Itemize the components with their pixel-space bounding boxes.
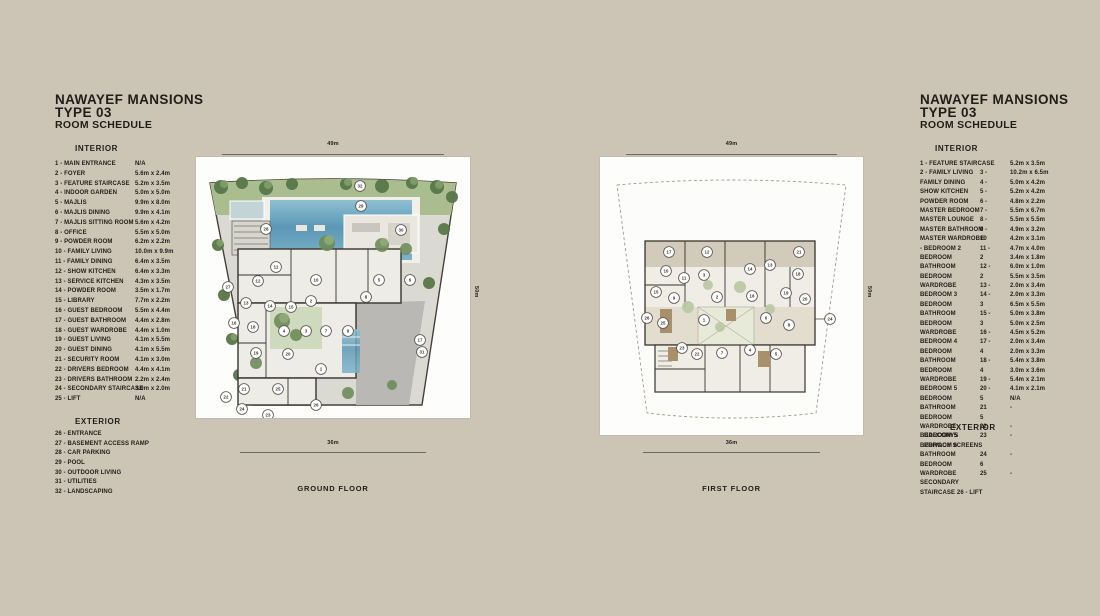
exterior-item-nm: 29 - POOL xyxy=(55,460,85,466)
interior-row: SECONDARY xyxy=(920,480,1098,489)
first-floor-label: FIRST FLOOR xyxy=(600,484,863,493)
interior-item-sz: 4.1m x 5.5m xyxy=(135,347,170,353)
interior-row-nb: 5 - xyxy=(980,189,987,195)
interior-item-nm: 11 - FAMILY DINING xyxy=(55,259,112,265)
room-marker-number: 11 xyxy=(682,276,687,281)
exterior-item: 30 - OUTDOOR LIVING xyxy=(55,470,215,480)
ground-dim-bottom-line xyxy=(240,452,426,453)
interior-item-nm: 6 - MAJLIS DINING xyxy=(55,210,110,216)
interior-row: BEDROOM5 xyxy=(920,415,1098,424)
page: NAWAYEF MANSIONS TYPE 03 ROOM SCHEDULE I… xyxy=(0,0,1100,616)
first-dim-side: 50m xyxy=(866,286,872,298)
interior-row-sz: 5.2m x 4.2m xyxy=(1010,189,1045,195)
interior-item-nm: 19 - GUEST LIVING xyxy=(55,337,111,343)
interior-row-nm: SHOW KITCHEN xyxy=(920,189,968,195)
interior-row-sz: 5.5m x 5.5m xyxy=(1010,217,1045,223)
interior-row-sz: N/A xyxy=(1010,396,1021,402)
interior-row-nm: BEDROOM xyxy=(920,396,952,402)
interior-item-nm: 9 - POWDER ROOM xyxy=(55,239,113,245)
interior-row: - BEDROOM 211 -4.7m x 4.0m xyxy=(920,246,1098,255)
interior-row-nm: SECONDARY xyxy=(920,480,959,486)
interior-row: BEDROOM43.0m x 3.6m xyxy=(920,368,1098,377)
interior-item: 8 - OFFICE5.5m x 5.0m xyxy=(55,230,215,240)
exterior-item: 26 - ENTRANCE xyxy=(55,431,215,441)
interior-item: 15 - LIBRARY7.7m x 2.2m xyxy=(55,298,215,308)
interior-item-sz: 4.1m x 5.5m xyxy=(135,337,170,343)
interior-item-nm: 22 - DRIVERS BEDROOM xyxy=(55,367,129,373)
interior-item: 11 - FAMILY DINING6.4m x 3.5m xyxy=(55,259,215,269)
room-marker-number: 28 xyxy=(264,227,269,232)
interior-item-sz: 3.5m x 1.7m xyxy=(135,288,170,294)
interior-item-nm: 8 - OFFICE xyxy=(55,230,87,236)
first-dim-top-line xyxy=(626,154,837,155)
room-marker-number: 10 xyxy=(664,269,669,274)
room-marker-number: 21 xyxy=(242,387,247,392)
interior-item-sz: 5.2m x 3.5m xyxy=(135,181,170,187)
interior-row-nm: BEDROOM xyxy=(920,415,952,421)
interior-row-nm: BEDROOM xyxy=(920,368,952,374)
interior-row: BATHROOM21- xyxy=(920,405,1098,414)
interior-item-sz: 2.2m x 2.4m xyxy=(135,377,170,383)
exterior-item-nm: 26 - ENTRANCE xyxy=(55,431,102,437)
room-marker-number: 23 xyxy=(266,413,271,418)
interior-row: MASTER LOUNGE8 -5.5m x 5.5m xyxy=(920,217,1098,226)
interior-row-sz: - xyxy=(1010,405,1012,411)
exterior-item: 27 - BASEMENT ACCESS RAMP xyxy=(55,441,215,451)
room-marker-number: 10 xyxy=(314,278,319,283)
interior-row-sz: 5.2m x 3.5m xyxy=(1010,161,1045,167)
interior-row: POWDER ROOM6 -4.8m x 2.2m xyxy=(920,199,1098,208)
interior-row: STAIRCASE 26 - LIFT xyxy=(920,490,1098,499)
indoor-garden xyxy=(270,307,322,349)
interior-row-nm: BEDROOM xyxy=(920,349,952,355)
interior-item-sz: 5.5m x 4.4m xyxy=(135,308,170,314)
interior-row-sz: 2.0m x 3.4m xyxy=(1010,339,1045,345)
room-marker-number: 20 xyxy=(286,352,291,357)
room-marker-number: 13 xyxy=(768,263,773,268)
interior-row-sz: - xyxy=(1010,452,1012,458)
interior-row-sz: 4.2m x 3.1m xyxy=(1010,236,1045,242)
interior-item: 13 - SERVICE KITCHEN4.3m x 3.5m xyxy=(55,279,215,289)
exterior-item-nm: 32 - LANDSCAPING xyxy=(55,489,113,495)
interior-row-nm: BEDROOM xyxy=(920,321,952,327)
interior-item: 17 - GUEST BATHROOM4.4m x 2.8m xyxy=(55,318,215,328)
room-marker-number: 22 xyxy=(695,352,700,357)
interior-item-nm: 14 - POWDER ROOM xyxy=(55,288,116,294)
interior-row-nm: BEDROOM xyxy=(920,274,952,280)
left-interior-heading: INTERIOR xyxy=(75,144,118,153)
interior-item-sz: 5.6m x 2.4m xyxy=(135,171,170,177)
interior-item-sz: 6.4m x 3.3m xyxy=(135,269,170,275)
interior-item: 9 - POWDER ROOM6.2m x 2.2m xyxy=(55,239,215,249)
first-dim-bottom: 36m xyxy=(600,440,863,446)
right-exterior-heading: EXTERIOR xyxy=(950,423,996,432)
right-title-line2: TYPE 03 xyxy=(920,106,1068,119)
interior-row-nm: BEDROOM xyxy=(920,462,952,468)
left-title-line3: ROOM SCHEDULE xyxy=(55,119,203,131)
interior-item-nm: 17 - GUEST BATHROOM xyxy=(55,318,126,324)
interior-row-nb: 3 - xyxy=(980,170,987,176)
interior-item-nm: 3 - FEATURE STAIRCASE xyxy=(55,181,130,187)
interior-item: 19 - GUEST LIVING4.1m x 5.5m xyxy=(55,337,215,347)
interior-row-nb: 4 xyxy=(980,368,983,374)
interior-row-nb: 19 - xyxy=(980,377,990,383)
interior-row: BATHROOM12 -6.0m x 1.0m xyxy=(920,264,1098,273)
interior-item-sz: 3.0m x 2.0m xyxy=(135,386,170,392)
right-title: NAWAYEF MANSIONS TYPE 03 ROOM SCHEDULE xyxy=(920,93,1068,131)
interior-item-sz: N/A xyxy=(135,161,146,167)
interior-item-nm: 2 - FOYER xyxy=(55,171,85,177)
interior-row-nm: BEDROOM 3 xyxy=(920,292,957,298)
interior-row: BEDROOM6 xyxy=(920,462,1098,471)
interior-item-sz: 4.3m x 3.5m xyxy=(135,279,170,285)
interior-row-nb: 4 - xyxy=(980,180,987,186)
interior-item-sz: 5.0m x 5.0m xyxy=(135,190,170,196)
interior-row-nm: WARDROBE xyxy=(920,377,956,383)
interior-row-nm: WARDROBE xyxy=(920,330,956,336)
first-dim-bottom-line xyxy=(643,452,820,453)
interior-item-nm: 16 - GUEST BEDROOM xyxy=(55,308,122,314)
interior-row-nb: 20 - xyxy=(980,386,990,392)
interior-row-sz: 6.0m x 1.0m xyxy=(1010,264,1045,270)
room-marker-number: 19 xyxy=(784,291,789,296)
interior-item: 22 - DRIVERS BEDROOM4.4m x 4.1m xyxy=(55,367,215,377)
interior-row-nm: - BEDROOM 2 xyxy=(920,246,961,252)
interior-item-nm: 7 - MAJLIS SITTING ROOM xyxy=(55,220,134,226)
interior-item-sz: 5.6m x 4.2m xyxy=(135,220,170,226)
interior-row: FAMILY DINING4 -5.0m x 4.2m xyxy=(920,180,1098,189)
interior-row-nb: 24 xyxy=(980,452,987,458)
interior-row: 2 - FAMILY LIVING3 -10.2m x 6.5m xyxy=(920,170,1098,179)
room-marker-number: 20 xyxy=(803,297,808,302)
interior-row: WARDROBE25- xyxy=(920,471,1098,480)
interior-row-sz: 5.4m x 3.8m xyxy=(1010,358,1045,364)
building xyxy=(645,241,825,392)
interior-item: 24 - SECONDARY STAIRCASE3.0m x 2.0m xyxy=(55,386,215,396)
interior-row-nb: 13 - xyxy=(980,283,990,289)
right-exterior-item-2: PRIVACY SCREENS xyxy=(924,443,982,449)
interior-row-sz: 3.4m x 1.8m xyxy=(1010,255,1045,261)
interior-row-sz: 4.7m x 4.0m xyxy=(1010,246,1045,252)
interior-row-nb: 2 xyxy=(980,274,983,280)
interior-row-nm: MASTER BATHROOM xyxy=(920,227,983,233)
interior-item-sz: 9.9m x 4.1m xyxy=(135,210,170,216)
room-marker-number: 26 xyxy=(645,316,650,321)
interior-row-nb: 10 xyxy=(980,236,987,242)
interior-row: WARDROBE16 -4.5m x 5.2m xyxy=(920,330,1098,339)
interior-item: 21 - SECURITY ROOM4.1m x 3.0m xyxy=(55,357,215,367)
interior-row: WARDROBE13 -2.0m x 3.4m xyxy=(920,283,1098,292)
interior-item: 14 - POWDER ROOM3.5m x 1.7m xyxy=(55,288,215,298)
left-interior-list: 1 - MAIN ENTRANCEN/A2 - FOYER5.6m x 2.4m… xyxy=(55,161,215,406)
interior-row-sz: 2.0m x 3.3m xyxy=(1010,292,1045,298)
interior-item: 23 - DRIVERS BATHROOM2.2m x 2.4m xyxy=(55,377,215,387)
interior-item: 16 - GUEST BEDROOM5.5m x 4.4m xyxy=(55,308,215,318)
interior-row-nb: 4 xyxy=(980,349,983,355)
interior-item: 4 - INDOOR GARDEN5.0m x 5.0m xyxy=(55,190,215,200)
room-marker-number: 18 xyxy=(796,272,801,277)
interior-row: BATHROOM15 -5.0m x 3.8m xyxy=(920,311,1098,320)
interior-row: 1 - FEATURE STAIRCASE5.2m x 3.5m xyxy=(920,161,1098,170)
interior-row-nb: 14 - xyxy=(980,292,990,298)
interior-item-nm: 13 - SERVICE KITCHEN xyxy=(55,279,124,285)
interior-row-sz: 5.0m x 3.8m xyxy=(1010,311,1045,317)
left-title: NAWAYEF MANSIONS TYPE 03 ROOM SCHEDULE xyxy=(55,93,203,131)
interior-item-sz: 9.9m x 8.0m xyxy=(135,200,170,206)
interior-row: BEDROOM36.5m x 5.5m xyxy=(920,302,1098,311)
interior-row: MASTER WARDROBE104.2m x 3.1m xyxy=(920,236,1098,245)
interior-item: 7 - MAJLIS SITTING ROOM5.6m x 4.2m xyxy=(55,220,215,230)
interior-row-sz: 3.0m x 3.6m xyxy=(1010,368,1045,374)
interior-item: 1 - MAIN ENTRANCEN/A xyxy=(55,161,215,171)
interior-row-sz: 6.5m x 5.5m xyxy=(1010,302,1045,308)
interior-item-nm: 18 - GUEST WARDROBE xyxy=(55,328,127,334)
interior-item-sz: 10.0m x 9.9m xyxy=(135,249,174,255)
interior-row: WARDROBE22- xyxy=(920,424,1098,433)
room-marker-number: 19 xyxy=(254,351,259,356)
interior-row-nm: POWDER ROOM xyxy=(920,199,968,205)
interior-row: WARDROBE19 -5.4m x 2.1m xyxy=(920,377,1098,386)
interior-item-sz: 4.4m x 1.0m xyxy=(135,328,170,334)
interior-row-sz: - xyxy=(1010,424,1012,430)
interior-item-sz: N/A xyxy=(135,396,146,402)
room-marker-number: 26 xyxy=(314,403,319,408)
interior-row-nb: 5 xyxy=(980,396,983,402)
left-title-line2: TYPE 03 xyxy=(55,106,203,119)
room-marker-number: 29 xyxy=(359,204,364,209)
interior-item: 25 - LIFTN/A xyxy=(55,396,215,406)
interior-row: MASTER BEDROOM7 -5.5m x 6.7m xyxy=(920,208,1098,217)
interior-row-sz: - xyxy=(1010,471,1012,477)
interior-row-nm: BATHROOM xyxy=(920,264,956,270)
interior-item: 10 - FAMILY LIVING10.0m x 9.9m xyxy=(55,249,215,259)
interior-row-nb: 7 - xyxy=(980,208,987,214)
room-marker-number: 16 xyxy=(750,294,755,299)
interior-row-nm: BEDROOM xyxy=(920,302,952,308)
interior-item-nm: 23 - DRIVERS BATHROOM xyxy=(55,377,132,383)
room-marker-number: 12 xyxy=(705,250,710,255)
room-marker-number: 30 xyxy=(399,228,404,233)
room-marker-number: 18 xyxy=(251,325,256,330)
interior-row-nb: 16 - xyxy=(980,330,990,336)
ground-dim-bottom: 36m xyxy=(196,440,470,446)
interior-row-nb: 25 xyxy=(980,471,987,477)
interior-row-nm: BEDROOM 5 xyxy=(920,386,957,392)
interior-item-nm: 24 - SECONDARY STAIRCASE xyxy=(55,386,143,392)
interior-row-nm: 2 - FAMILY LIVING xyxy=(920,170,973,176)
interior-row-nb: 5 xyxy=(980,415,983,421)
room-marker-number: 25 xyxy=(276,387,281,392)
room-marker-number: 23 xyxy=(680,346,685,351)
room-marker-number: 31 xyxy=(420,350,425,355)
interior-item: 5 - MAJLIS9.9m x 8.0m xyxy=(55,200,215,210)
interior-item-nm: 15 - LIBRARY xyxy=(55,298,95,304)
interior-item-nm: 20 - GUEST DINING xyxy=(55,347,112,353)
interior-row-nm: FAMILY DINING xyxy=(920,180,965,186)
interior-row-nm: BEDROOM 4 xyxy=(920,339,957,345)
first-dim-top: 49m xyxy=(600,141,863,147)
room-marker-number: 15 xyxy=(289,305,294,310)
interior-row: BEDROOM25.5m x 3.5m xyxy=(920,274,1098,283)
interior-item: 6 - MAJLIS DINING9.9m x 4.1m xyxy=(55,210,215,220)
interior-row-sz: 4.5m x 5.2m xyxy=(1010,330,1045,336)
interior-item-nm: 21 - SECURITY ROOM xyxy=(55,357,119,363)
interior-item-sz: 6.2m x 2.2m xyxy=(135,239,170,245)
interior-item: 2 - FOYER5.6m x 2.4m xyxy=(55,171,215,181)
room-marker-number: 27 xyxy=(226,285,231,290)
interior-item-sz: 4.4m x 2.8m xyxy=(135,318,170,324)
interior-row-sz: - xyxy=(1010,433,1012,439)
interior-item-sz: 5.5m x 5.0m xyxy=(135,230,170,236)
ground-dim-top-line xyxy=(222,154,444,155)
room-marker-number: 14 xyxy=(268,304,273,309)
exterior-item-nm: 28 - CAR PARKING xyxy=(55,450,111,456)
interior-row-nm: BATHROOM xyxy=(920,405,956,411)
interior-row-nm: BATHROOM xyxy=(920,311,956,317)
interior-row-nm: WARDROBE xyxy=(920,283,956,289)
room-marker-number: 16 xyxy=(232,321,237,326)
interior-item-sz: 4.4m x 4.1m xyxy=(135,367,170,373)
right-interior-heading: INTERIOR xyxy=(935,144,978,153)
interior-row-sz: 5.0m x 2.5m xyxy=(1010,321,1045,327)
room-marker-number: 24 xyxy=(828,317,833,322)
exterior-item-nm: 30 - OUTDOOR LIVING xyxy=(55,470,121,476)
interior-row-nb: 6 xyxy=(980,462,983,468)
exterior-item-nm: 31 - UTILITIES xyxy=(55,479,97,485)
interior-item-sz: 6.4m x 3.5m xyxy=(135,259,170,265)
interior-row-sz: 10.2m x 6.5m xyxy=(1010,170,1049,176)
exterior-item: 28 - CAR PARKING xyxy=(55,450,215,460)
room-marker-number: 14 xyxy=(748,267,753,272)
interior-row-nm: BATHROOM xyxy=(920,452,956,458)
interior-row-nb: 23 xyxy=(980,433,987,439)
interior-row-nb: 15 - xyxy=(980,311,990,317)
interior-row-sz: 5.4m x 2.1m xyxy=(1010,377,1045,383)
interior-row-nm: MASTER LOUNGE xyxy=(920,217,974,223)
interior-row-nm: STAIRCASE 26 - LIFT xyxy=(920,490,982,496)
interior-row-nb: 6 - xyxy=(980,199,987,205)
left-exterior-list: 26 - ENTRANCE27 - BASEMENT ACCESS RAMP28… xyxy=(55,431,215,499)
interior-row-nb: 8 - xyxy=(980,217,987,223)
interior-row-nm: BATHROOM xyxy=(920,358,956,364)
interior-row-nb: 11 - xyxy=(980,246,990,252)
interior-row-sz: 2.0m x 3.4m xyxy=(1010,283,1045,289)
ground-floor-drawing: 3229283027111210561314152817161843791920… xyxy=(196,157,470,418)
interior-row-nb: 17 - xyxy=(980,339,990,345)
interior-row-nm: WARDROBE xyxy=(920,471,956,477)
interior-row: SHOW KITCHEN5 -5.2m x 4.2m xyxy=(920,189,1098,198)
interior-row: BEDROOM 520 -4.1m x 2.1m xyxy=(920,386,1098,395)
room-marker-number: 25 xyxy=(661,321,666,326)
exterior-item: 29 - POOL xyxy=(55,460,215,470)
interior-row-sz: 5.5m x 6.7m xyxy=(1010,208,1045,214)
interior-item: 18 - GUEST WARDROBE4.4m x 1.0m xyxy=(55,328,215,338)
interior-item-nm: 12 - SHOW KITCHEN xyxy=(55,269,116,275)
interior-item-nm: 4 - INDOOR GARDEN xyxy=(55,190,117,196)
exterior-item: 31 - UTILITIES xyxy=(55,479,215,489)
room-marker-number: 21 xyxy=(797,250,802,255)
interior-row-sz: 5.5m x 3.5m xyxy=(1010,274,1045,280)
ground-dim-top: 49m xyxy=(196,141,470,147)
interior-row-nb: 12 - xyxy=(980,264,990,270)
interior-row: BEDROOM23.4m x 1.8m xyxy=(920,255,1098,264)
first-floor-plan: 1712211011314131815921619202625168242322… xyxy=(600,157,863,435)
interior-item-sz: 7.7m x 2.2m xyxy=(135,298,170,304)
interior-item: 12 - SHOW KITCHEN6.4m x 3.3m xyxy=(55,269,215,279)
interior-row-sz: 4.1m x 2.1m xyxy=(1010,386,1045,392)
interior-row-nm: 1 - FEATURE STAIRCASE xyxy=(920,161,995,167)
first-floor-drawing: 1712211011314131815921619202625168242322… xyxy=(600,157,863,435)
interior-row-sz: 5.0m x 4.2m xyxy=(1010,180,1045,186)
room-marker-number: 13 xyxy=(244,301,249,306)
interior-row-nb: 21 xyxy=(980,405,987,411)
interior-row: BEDROOM5N/A xyxy=(920,396,1098,405)
interior-row-sz: 2.0m x 3.3m xyxy=(1010,349,1045,355)
interior-row: BEDROOM42.0m x 3.3m xyxy=(920,349,1098,358)
room-marker-number: 15 xyxy=(654,290,659,295)
interior-row-nb: 18 - xyxy=(980,358,990,364)
interior-row-nb: 2 xyxy=(980,255,983,261)
interior-item-sz: 4.1m x 3.0m xyxy=(135,357,170,363)
interior-row-nb: 9 - xyxy=(980,227,987,233)
interior-item-nm: 25 - LIFT xyxy=(55,396,81,402)
interior-row-nm: MASTER BEDROOM xyxy=(920,208,980,214)
interior-item-nm: 1 - MAIN ENTRANCE xyxy=(55,161,116,167)
interior-row-nb: 3 xyxy=(980,321,983,327)
exterior-item: 32 - LANDSCAPING xyxy=(55,489,215,499)
interior-row: MASTER BATHROOM9 -4.9m x 3.2m xyxy=(920,227,1098,236)
interior-row: BEDROOM 314 -2.0m x 3.3m xyxy=(920,292,1098,301)
interior-row: BEDROOM35.0m x 2.5m xyxy=(920,321,1098,330)
water-feature xyxy=(230,201,264,219)
room-marker-number: 11 xyxy=(274,265,279,270)
ground-dim-side: 50m xyxy=(473,286,479,298)
interior-row: BATHROOM18 -5.4m x 3.8m xyxy=(920,358,1098,367)
interior-row-nb: 3 xyxy=(980,302,983,308)
interior-row-nm: MASTER WARDROBE xyxy=(920,236,984,242)
left-exterior-heading: EXTERIOR xyxy=(75,417,121,426)
room-marker-number: 24 xyxy=(240,407,245,412)
interior-item-nm: 10 - FAMILY LIVING xyxy=(55,249,112,255)
interior-row-nm: BEDROOM xyxy=(920,255,952,261)
room-marker-number: 12 xyxy=(256,279,261,284)
right-exterior-item-1: BALCONYS xyxy=(924,433,958,439)
exterior-item-nm: 27 - BASEMENT ACCESS RAMP xyxy=(55,441,149,447)
room-marker-number: 17 xyxy=(418,338,423,343)
room-marker-number: 17 xyxy=(667,250,672,255)
interior-item: 3 - FEATURE STAIRCASE5.2m x 3.5m xyxy=(55,181,215,191)
interior-item: 20 - GUEST DINING4.1m x 5.5m xyxy=(55,347,215,357)
interior-row-sz: 4.8m x 2.2m xyxy=(1010,199,1045,205)
interior-item-nm: 5 - MAJLIS xyxy=(55,200,87,206)
interior-row: BEDROOM 417 -2.0m x 3.4m xyxy=(920,339,1098,348)
interior-row-sz: 4.9m x 3.2m xyxy=(1010,227,1045,233)
room-marker-number: 32 xyxy=(358,184,363,189)
ground-floor-label: GROUND FLOOR xyxy=(196,484,470,493)
ground-floor-plan: 3229283027111210561314152817161843791920… xyxy=(196,157,470,418)
interior-row: BATHROOM24- xyxy=(920,452,1098,461)
room-marker-number: 22 xyxy=(224,395,229,400)
right-title-line3: ROOM SCHEDULE xyxy=(920,119,1068,131)
